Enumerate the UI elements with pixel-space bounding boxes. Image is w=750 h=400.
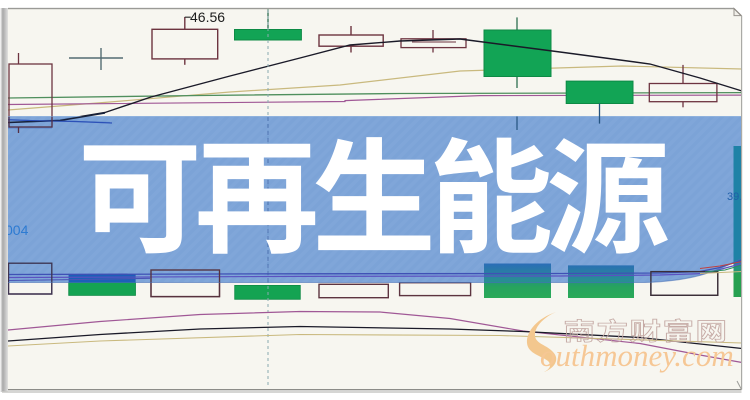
svg-text:46.56: 46.56 — [190, 9, 225, 25]
svg-text:outhmoney.com: outhmoney.com — [540, 338, 734, 373]
svg-text:004: 004 — [5, 222, 29, 238]
